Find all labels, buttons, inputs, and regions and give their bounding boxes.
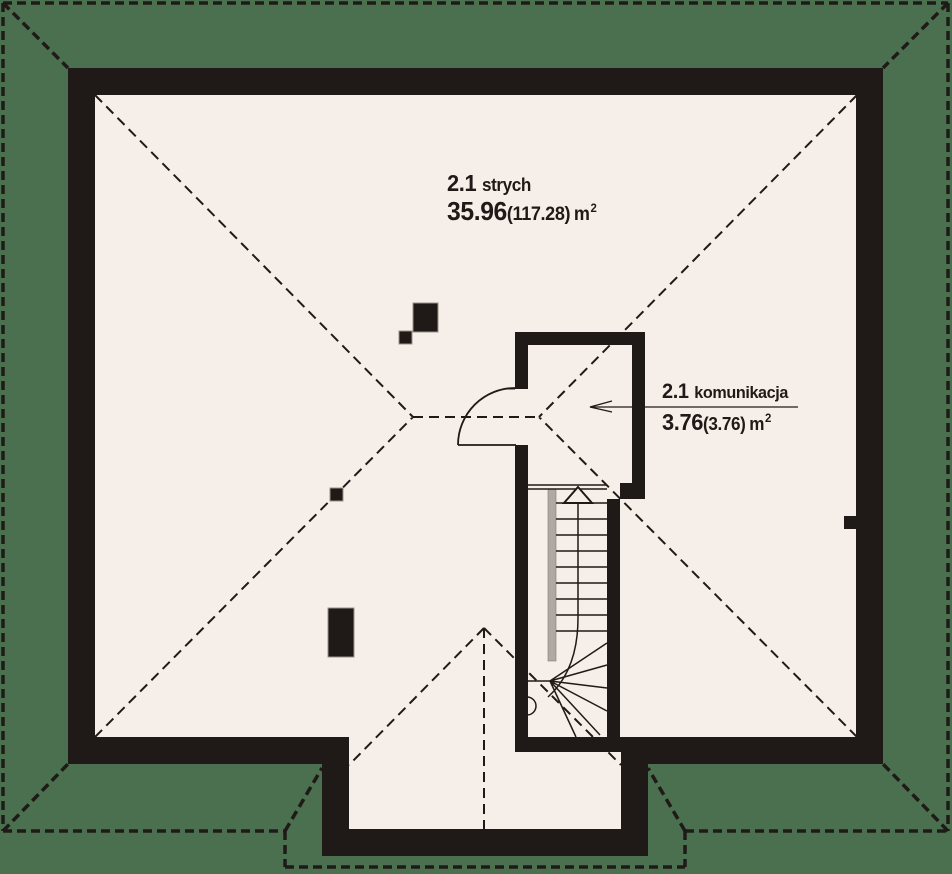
floor-plan-canvas: 2.1strych 35.96(117.28)m2 2.1komunikacja… xyxy=(0,0,952,874)
room-title-komunikacja: 2.1komunikacja xyxy=(662,381,788,402)
room-name: komunikacja xyxy=(694,383,788,402)
komunikacja-wall-right xyxy=(632,332,645,499)
komunikacja-wall-left-lower xyxy=(515,445,528,752)
room-label-komunikacja: 2.1komunikacja 3.76(3.76)m2 xyxy=(662,381,788,434)
stair-wall-right xyxy=(607,499,620,752)
room-area-paren: (3.76) xyxy=(703,414,745,434)
room-area-komunikacja: 3.76(3.76)m2 xyxy=(662,411,788,434)
room-unit: m xyxy=(574,204,590,225)
wall-top xyxy=(68,68,883,95)
chimney-block-large xyxy=(413,303,438,332)
wall-left xyxy=(68,95,95,764)
chimney-block-tall xyxy=(328,608,354,657)
stair-wall-connector xyxy=(620,483,645,499)
room-area-paren: (117.28) xyxy=(507,204,570,225)
room-area-strych: 35.96(117.28)m2 xyxy=(447,198,597,224)
wall-bottom-right xyxy=(621,737,883,764)
room-number: 2.1 xyxy=(447,170,476,196)
room-name: strych xyxy=(482,175,531,195)
room-area: 3.76 xyxy=(662,409,703,435)
room-unit-sup: 2 xyxy=(765,411,771,425)
wall-right xyxy=(856,95,883,764)
room-unit-sup: 2 xyxy=(591,201,597,215)
room-number: 2.1 xyxy=(662,380,689,403)
wall-pilaster-right xyxy=(844,516,857,529)
floor-plan-drawing xyxy=(0,0,952,874)
room-area: 35.96 xyxy=(447,196,507,226)
wall-bottom-left xyxy=(68,737,349,764)
room-title-strych: 2.1strych xyxy=(447,172,597,195)
room-unit: m xyxy=(749,414,764,434)
room-label-strych: 2.1strych 35.96(117.28)m2 xyxy=(447,172,597,224)
chimney-block-small-2 xyxy=(330,488,343,501)
komunikacja-wall-top xyxy=(515,332,645,345)
komunikacja-wall-left-upper xyxy=(515,332,528,389)
stair-wall-bottom xyxy=(515,737,648,752)
chimney-block-small-1 xyxy=(399,331,412,344)
porch-wall-bottom xyxy=(322,829,648,856)
stair-stringer xyxy=(548,489,556,661)
